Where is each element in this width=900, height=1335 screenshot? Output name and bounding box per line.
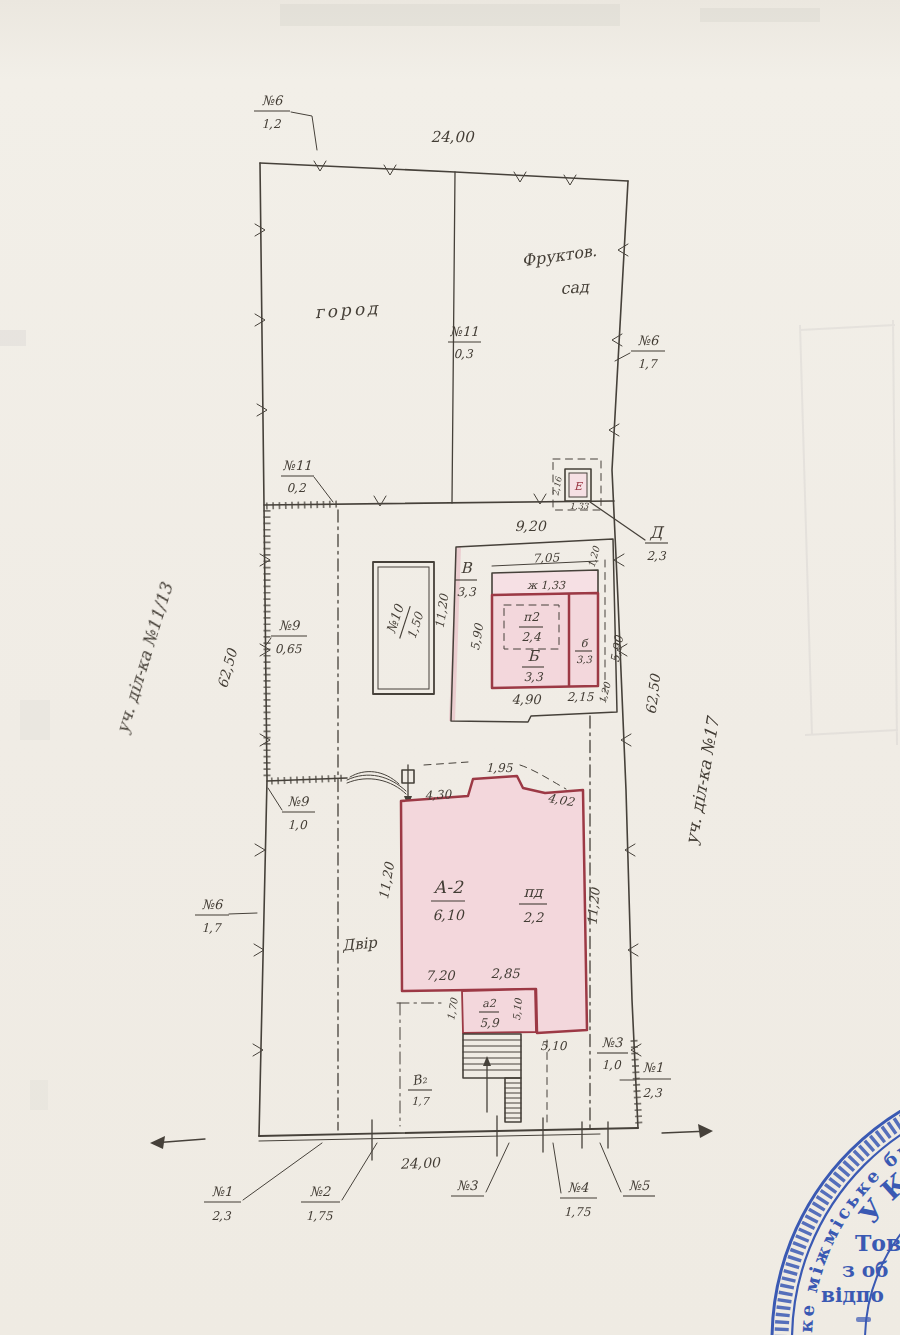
fence-marker-1-bottom: №1 2,3 — [204, 1143, 322, 1223]
leader — [314, 477, 333, 502]
dim-a-left: 11,20 — [376, 860, 398, 901]
structure-e: Е 2,16 1,33 Д 2,3 — [550, 459, 668, 563]
fence-h: 2,3 — [642, 1086, 662, 1100]
structure-d-label: Д — [649, 523, 664, 542]
dim-b-right: 5,90 — [608, 634, 627, 664]
leader — [553, 1143, 561, 1193]
house-label: А-2 — [433, 877, 464, 897]
fence-marker-6-right: №6 1,7 — [615, 333, 665, 371]
fence-h: 0,2 — [286, 481, 306, 495]
area-orchard-2: сад — [560, 277, 592, 298]
fence-no: №2 — [310, 1184, 331, 1199]
fence-marker-9-upper: №9 0,65 — [266, 618, 307, 656]
stamp-line-3: відпо — [821, 1283, 884, 1307]
dim-a-right: 11,20 — [584, 886, 602, 926]
leader — [600, 1143, 621, 1192]
shed10-label: №10 — [383, 601, 407, 635]
fence-no: №1 — [212, 1184, 233, 1199]
scanned-survey-plan: №10 1,50 9,20 7,05 ж 1,33 п2 2,4 Б 3,3 б… — [0, 0, 900, 1335]
dim-annex-left: 1,70 — [445, 996, 460, 1021]
dim-left-length: 62,50 — [214, 646, 240, 690]
fence-no: №3 — [602, 1035, 624, 1050]
dim-b-block-top: 9,20 — [514, 518, 546, 534]
leader — [291, 112, 317, 150]
dim-a-bottom-right: 2,85 — [491, 966, 521, 981]
kitchen-upper-label: п2 — [523, 610, 540, 624]
fence-h: 1,75 — [564, 1205, 592, 1219]
annex-label: а2 — [482, 997, 497, 1010]
right-neighbor-label: уч. діл-ка №17 — [681, 714, 724, 847]
fence-h: 2,3 — [211, 1209, 231, 1223]
kitchen-strip-label: ж 1,33 — [527, 579, 566, 592]
fence-no: №4 — [568, 1180, 589, 1195]
structure-v-label: В — [460, 559, 472, 577]
fence-h: 1,0 — [601, 1058, 621, 1072]
structure-v-value: 3,3 — [456, 585, 476, 599]
fence-marker-11-divider: №11 0,3 — [448, 324, 481, 361]
fence-marker-11-yard: №11 0,2 — [281, 458, 333, 502]
leader — [268, 788, 282, 810]
arrow-right — [698, 1124, 713, 1138]
dim-b-corner-top: 1,20 — [586, 545, 602, 569]
kitchen-value: 3,3 — [523, 670, 543, 684]
dim-top-width: 24,00 — [431, 128, 475, 146]
kitchen-wing-value: 3,3 — [576, 654, 593, 665]
stamp-cut-line-fragment — [856, 1317, 871, 1322]
dim-a-top-left: 4,30 — [424, 787, 453, 802]
structure-d-value: 2,3 — [646, 549, 666, 563]
dim-right-length: 62,50 — [643, 672, 664, 715]
fence-h: 1,0 — [287, 818, 307, 832]
porch-label: пд — [523, 883, 544, 901]
dim-e-bottom: 1,33 — [570, 501, 590, 511]
fence-no: №5 — [629, 1178, 650, 1193]
kitchen-upper-value: 2,4 — [521, 630, 540, 644]
fence-h: 1,7 — [637, 357, 657, 371]
leader-d — [590, 502, 645, 540]
fence-marker-6-left: №6 1,7 — [195, 897, 257, 935]
fence-h: 1,75 — [306, 1209, 334, 1223]
structure-v2: В₂ 1,7 — [408, 1071, 432, 1108]
dim-stairs: 5,10 — [540, 1039, 568, 1053]
fence-no: №6 — [202, 897, 224, 912]
stairs: 5,10 — [463, 1034, 568, 1122]
fence-marker-2-bottom: №2 1,75 — [301, 1143, 377, 1223]
structure-v2-value: 1,7 — [411, 1095, 430, 1108]
dim-annex-right: 5,10 — [511, 996, 524, 1021]
fence-no: №6 — [262, 93, 284, 108]
annex-value: 5,9 — [479, 1016, 499, 1030]
fence-marker-6-topleft: №6 1,2 — [254, 93, 317, 150]
house-value: 6,10 — [432, 907, 464, 923]
fence-h: 1,2 — [261, 117, 281, 131]
dim-b-slant: 11,20 — [433, 592, 452, 629]
stamp-line-2: з об — [842, 1258, 888, 1282]
shed-10: №10 1,50 — [373, 562, 434, 694]
fence-no: №11 — [283, 458, 312, 473]
leader — [615, 353, 630, 361]
arrow-left — [150, 1136, 165, 1149]
round-stamp: ке міжміське бю УК Тов з об відпо — [772, 1072, 900, 1335]
dim-a-bay: 1,95 — [486, 761, 514, 775]
porch-value: 2,2 — [523, 910, 544, 925]
kitchen-block: 9,20 7,05 ж 1,33 п2 2,4 Б 3,3 б 3,3 5,90… — [433, 518, 627, 722]
fence-h: 1,7 — [201, 921, 221, 935]
stamp-line-1: Тов — [855, 1230, 900, 1256]
left-neighbor-label: уч. діл-ка №11/13 — [112, 580, 177, 737]
dim-a-bottom-left: 7,20 — [426, 968, 457, 983]
fence-h: 0,3 — [453, 347, 473, 361]
fence-h: 0,65 — [275, 642, 303, 656]
dim-b-bottom-left: 4,90 — [512, 692, 543, 707]
fence-no: №9 — [279, 618, 301, 633]
fence-no: №3 — [457, 1178, 479, 1193]
fence-marker-5-bottom: №5 — [600, 1143, 655, 1196]
boundary-top — [260, 163, 628, 181]
fence-no: №9 — [288, 794, 310, 809]
area-yard: Двір — [341, 933, 379, 955]
structure-v2-label: В₂ — [411, 1071, 429, 1088]
fence-marker-1-rightcorner: №1 2,3 — [620, 1060, 671, 1100]
dim-b-top: 7,05 — [532, 550, 561, 565]
fence-marker-3-right: №3 1,0 — [597, 1035, 628, 1072]
dim-e-left: 2,16 — [550, 475, 563, 497]
dim-b-bottom-right: 2,15 — [567, 690, 595, 704]
fence-marker-4-bottom: №4 1,75 — [553, 1143, 597, 1219]
area-orchard-1: Фруктов. — [521, 241, 598, 270]
fence-no: №1 — [643, 1060, 664, 1075]
leader — [342, 1143, 377, 1200]
fence-no: №11 — [450, 324, 479, 339]
dim-bottom-width: 24,00 — [400, 1154, 442, 1171]
gate-swing — [347, 772, 406, 794]
area-garden: город — [314, 298, 381, 323]
plan-drawing: №10 1,50 9,20 7,05 ж 1,33 п2 2,4 Б 3,3 б… — [0, 0, 900, 1335]
fence-marker-9-lower: №9 1,0 — [268, 788, 315, 832]
fence-no: №6 — [638, 333, 660, 348]
house-a: 4,30 1,95 4,02 11,20 11,20 А-2 6,10 пд 2… — [376, 761, 603, 1033]
annex-a2 — [462, 989, 536, 1033]
leader — [229, 913, 257, 914]
fence-marker-3-bottom: №3 — [451, 1143, 509, 1196]
dim-b-left: 5,90 — [468, 622, 487, 652]
